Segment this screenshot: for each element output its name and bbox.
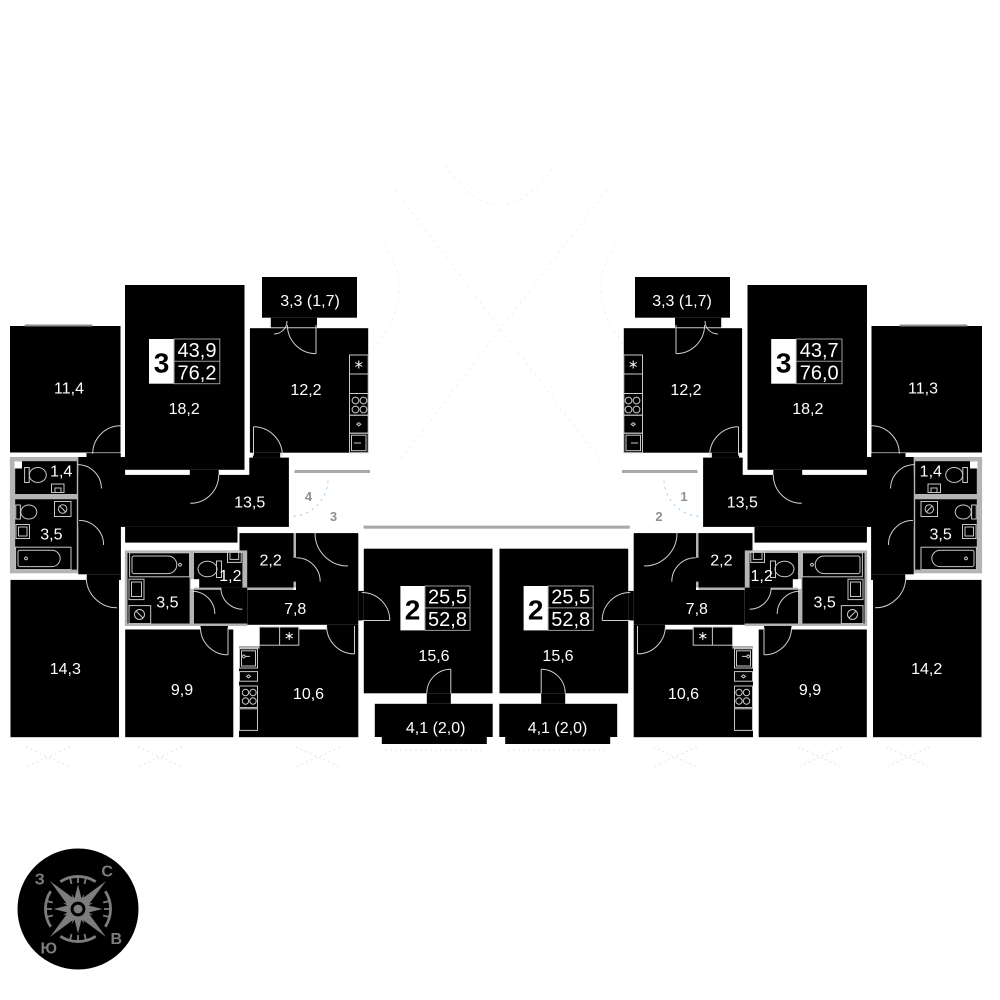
svg-text:1,4: 1,4 — [50, 464, 72, 481]
svg-text:1,2: 1,2 — [750, 568, 772, 585]
svg-text:52,8: 52,8 — [551, 609, 590, 631]
svg-text:3,5: 3,5 — [40, 527, 62, 544]
svg-text:7,8: 7,8 — [284, 601, 306, 618]
svg-text:76,0: 76,0 — [800, 363, 839, 385]
svg-text:18,2: 18,2 — [169, 401, 200, 418]
svg-text:11,3: 11,3 — [908, 381, 938, 398]
svg-text:12,2: 12,2 — [670, 382, 701, 399]
svg-text:4,1 (2,0): 4,1 (2,0) — [528, 720, 588, 737]
svg-text:4,1 (2,0): 4,1 (2,0) — [406, 720, 466, 737]
svg-text:2,2: 2,2 — [710, 553, 732, 570]
svg-text:7,8: 7,8 — [686, 601, 708, 618]
svg-text:13,5: 13,5 — [234, 494, 265, 511]
svg-text:14,2: 14,2 — [911, 661, 942, 678]
svg-text:3: 3 — [776, 348, 792, 379]
svg-text:2: 2 — [405, 595, 421, 626]
svg-text:С: С — [101, 864, 113, 881]
svg-text:1,4: 1,4 — [920, 464, 942, 481]
svg-text:3,3 (1,7): 3,3 (1,7) — [280, 293, 340, 310]
svg-text:52,8: 52,8 — [428, 609, 467, 631]
svg-text:18,2: 18,2 — [792, 401, 823, 418]
svg-text:3,5: 3,5 — [929, 527, 951, 544]
svg-text:3,5: 3,5 — [813, 594, 835, 611]
svg-text:9,9: 9,9 — [799, 682, 821, 699]
svg-text:11,4: 11,4 — [54, 381, 84, 398]
svg-text:76,2: 76,2 — [178, 363, 217, 385]
svg-text:43,7: 43,7 — [800, 340, 839, 362]
svg-text:25,5: 25,5 — [551, 587, 590, 609]
svg-text:2: 2 — [655, 509, 662, 524]
svg-text:В: В — [111, 931, 123, 948]
svg-text:12,2: 12,2 — [290, 382, 321, 399]
svg-text:14,3: 14,3 — [50, 661, 81, 678]
svg-text:13,5: 13,5 — [727, 494, 758, 511]
svg-text:9,9: 9,9 — [171, 682, 193, 699]
svg-text:25,5: 25,5 — [428, 587, 467, 609]
svg-text:3,3 (1,7): 3,3 (1,7) — [652, 293, 712, 310]
svg-text:3: 3 — [154, 348, 170, 379]
svg-text:10,6: 10,6 — [293, 686, 324, 703]
svg-text:Ю: Ю — [40, 941, 57, 958]
svg-text:3,5: 3,5 — [156, 594, 178, 611]
svg-text:10,6: 10,6 — [668, 686, 699, 703]
svg-text:15,6: 15,6 — [418, 648, 449, 665]
svg-text:З: З — [35, 872, 45, 889]
svg-text:15,6: 15,6 — [542, 648, 573, 665]
svg-text:2,2: 2,2 — [259, 553, 281, 570]
svg-text:43,9: 43,9 — [178, 340, 217, 362]
svg-text:3: 3 — [330, 509, 337, 524]
svg-text:4: 4 — [305, 489, 313, 504]
svg-text:2: 2 — [528, 595, 544, 626]
svg-text:1,2: 1,2 — [219, 568, 241, 585]
svg-text:1: 1 — [680, 489, 687, 504]
